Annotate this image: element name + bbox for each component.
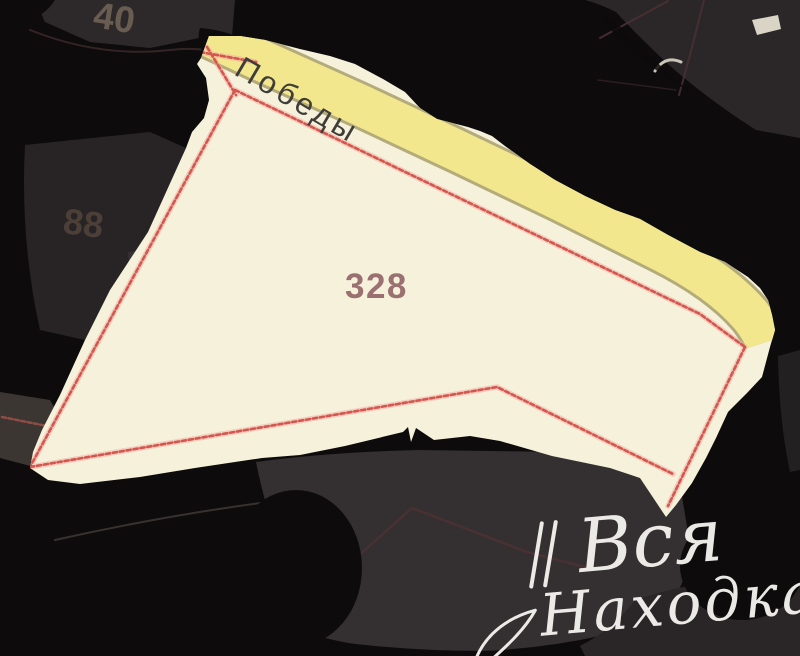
house-number-top-label: 40: [91, 0, 138, 41]
map-screenshot[interactable]: 40 88: [0, 0, 800, 656]
parcel-number-label: 328: [345, 267, 408, 306]
brush-blob: [230, 490, 362, 646]
house-number-left-label: 88: [61, 200, 106, 246]
